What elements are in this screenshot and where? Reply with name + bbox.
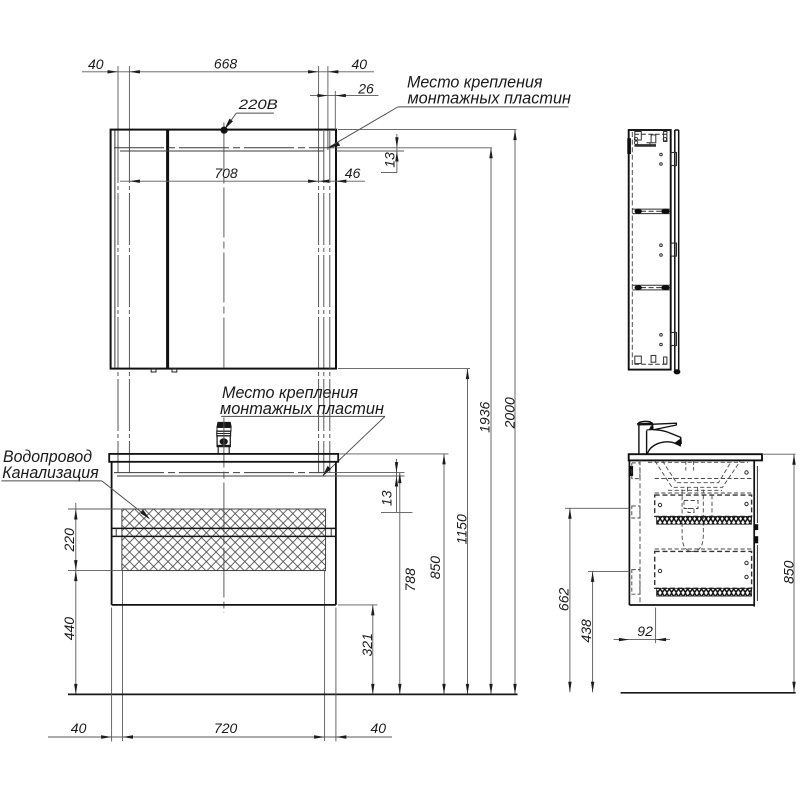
svg-text:220В: 220В xyxy=(238,96,278,112)
svg-text:440: 440 xyxy=(61,617,77,641)
svg-text:662: 662 xyxy=(555,588,571,612)
svg-text:40: 40 xyxy=(371,720,387,736)
svg-text:13: 13 xyxy=(381,152,397,168)
svg-text:92: 92 xyxy=(637,623,653,639)
svg-text:668: 668 xyxy=(214,56,238,72)
svg-text:40: 40 xyxy=(71,720,87,736)
svg-text:монтажных пластин: монтажных пластин xyxy=(220,399,385,418)
svg-text:850: 850 xyxy=(427,556,443,580)
svg-text:720: 720 xyxy=(214,720,238,736)
svg-text:монтажных пластин: монтажных пластин xyxy=(408,88,572,107)
svg-text:26: 26 xyxy=(357,81,374,97)
svg-text:13: 13 xyxy=(379,490,395,506)
svg-text:1936: 1936 xyxy=(476,402,492,433)
svg-text:321: 321 xyxy=(359,633,375,656)
svg-text:708: 708 xyxy=(214,165,238,181)
svg-text:1150: 1150 xyxy=(454,514,470,544)
svg-text:Канализация: Канализация xyxy=(2,463,99,482)
svg-text:220: 220 xyxy=(61,528,77,553)
svg-text:2000: 2000 xyxy=(502,397,518,429)
svg-text:438: 438 xyxy=(578,619,594,643)
svg-text:40: 40 xyxy=(88,56,104,72)
svg-text:46: 46 xyxy=(345,165,361,181)
svg-text:40: 40 xyxy=(352,56,368,72)
svg-text:788: 788 xyxy=(402,568,418,592)
svg-text:850: 850 xyxy=(781,560,797,584)
